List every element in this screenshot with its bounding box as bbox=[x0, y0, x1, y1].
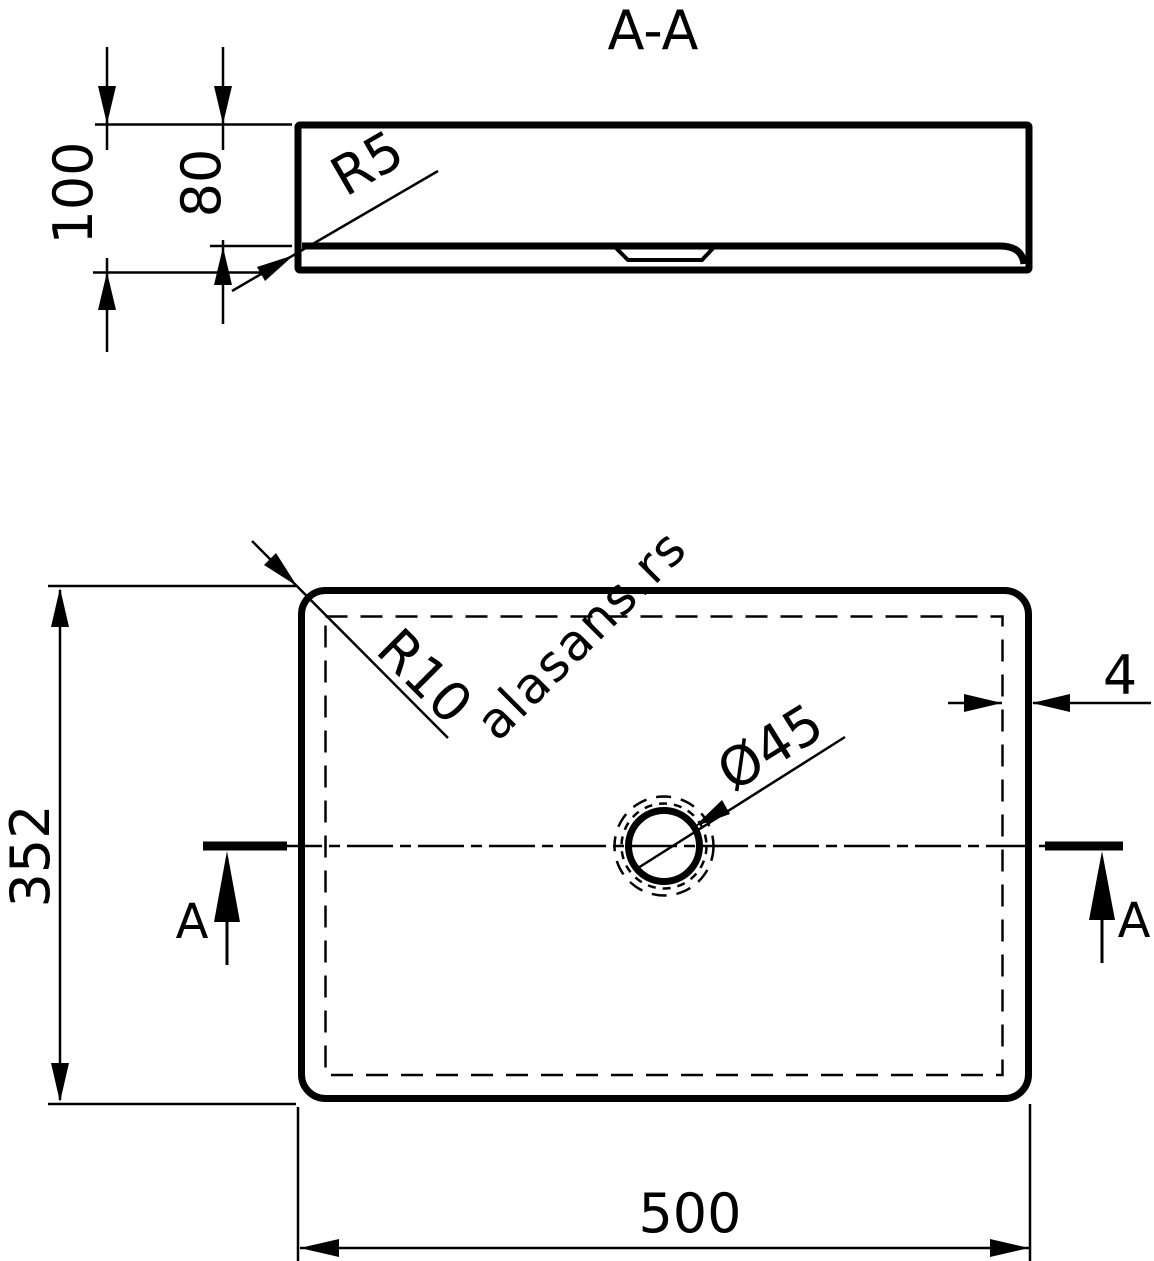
section-marker-left-label: A bbox=[176, 894, 209, 950]
technical-drawing-page: A-A 100 80 R5 bbox=[0, 0, 1154, 1261]
dim-352-arrow-top bbox=[51, 588, 69, 627]
watermark-text: alasans.rs bbox=[465, 518, 698, 751]
dim-80-arrow-top bbox=[214, 86, 232, 124]
dim-80-arrow-bottom bbox=[214, 247, 232, 285]
dim-100-arrow-top bbox=[98, 86, 116, 124]
dim-dia45-label: Ø45 bbox=[706, 691, 834, 803]
section-arrow-left-head bbox=[214, 851, 240, 922]
dim-500-arrow-left bbox=[300, 1239, 339, 1257]
dim-r5-label: R5 bbox=[320, 118, 414, 209]
dim-4-label: 4 bbox=[1103, 644, 1137, 707]
dim-4-arrow-right bbox=[1032, 694, 1070, 712]
section-title: A-A bbox=[608, 0, 699, 62]
section-arrow-right-head bbox=[1089, 851, 1115, 920]
dim-80-label: 80 bbox=[170, 149, 233, 218]
dim-500-label: 500 bbox=[638, 1182, 741, 1245]
dim-4-arrow-left bbox=[964, 694, 1002, 712]
dim-352-arrow-bottom bbox=[51, 1063, 69, 1102]
technical-drawing-canvas: A-A 100 80 R5 bbox=[0, 0, 1154, 1261]
dim-100-arrow-bottom bbox=[98, 272, 116, 310]
r5-leader-arrow bbox=[257, 255, 294, 281]
dim-352-label: 352 bbox=[0, 804, 62, 907]
dim-r10-label: R10 bbox=[365, 617, 485, 737]
section-view: A-A 100 80 R5 bbox=[42, 0, 1029, 352]
dim-100-label: 100 bbox=[42, 141, 105, 244]
dia45-leader-arrow bbox=[694, 800, 730, 827]
dim-500-arrow-right bbox=[990, 1239, 1029, 1257]
section-marker-right-label: A bbox=[1118, 893, 1151, 949]
